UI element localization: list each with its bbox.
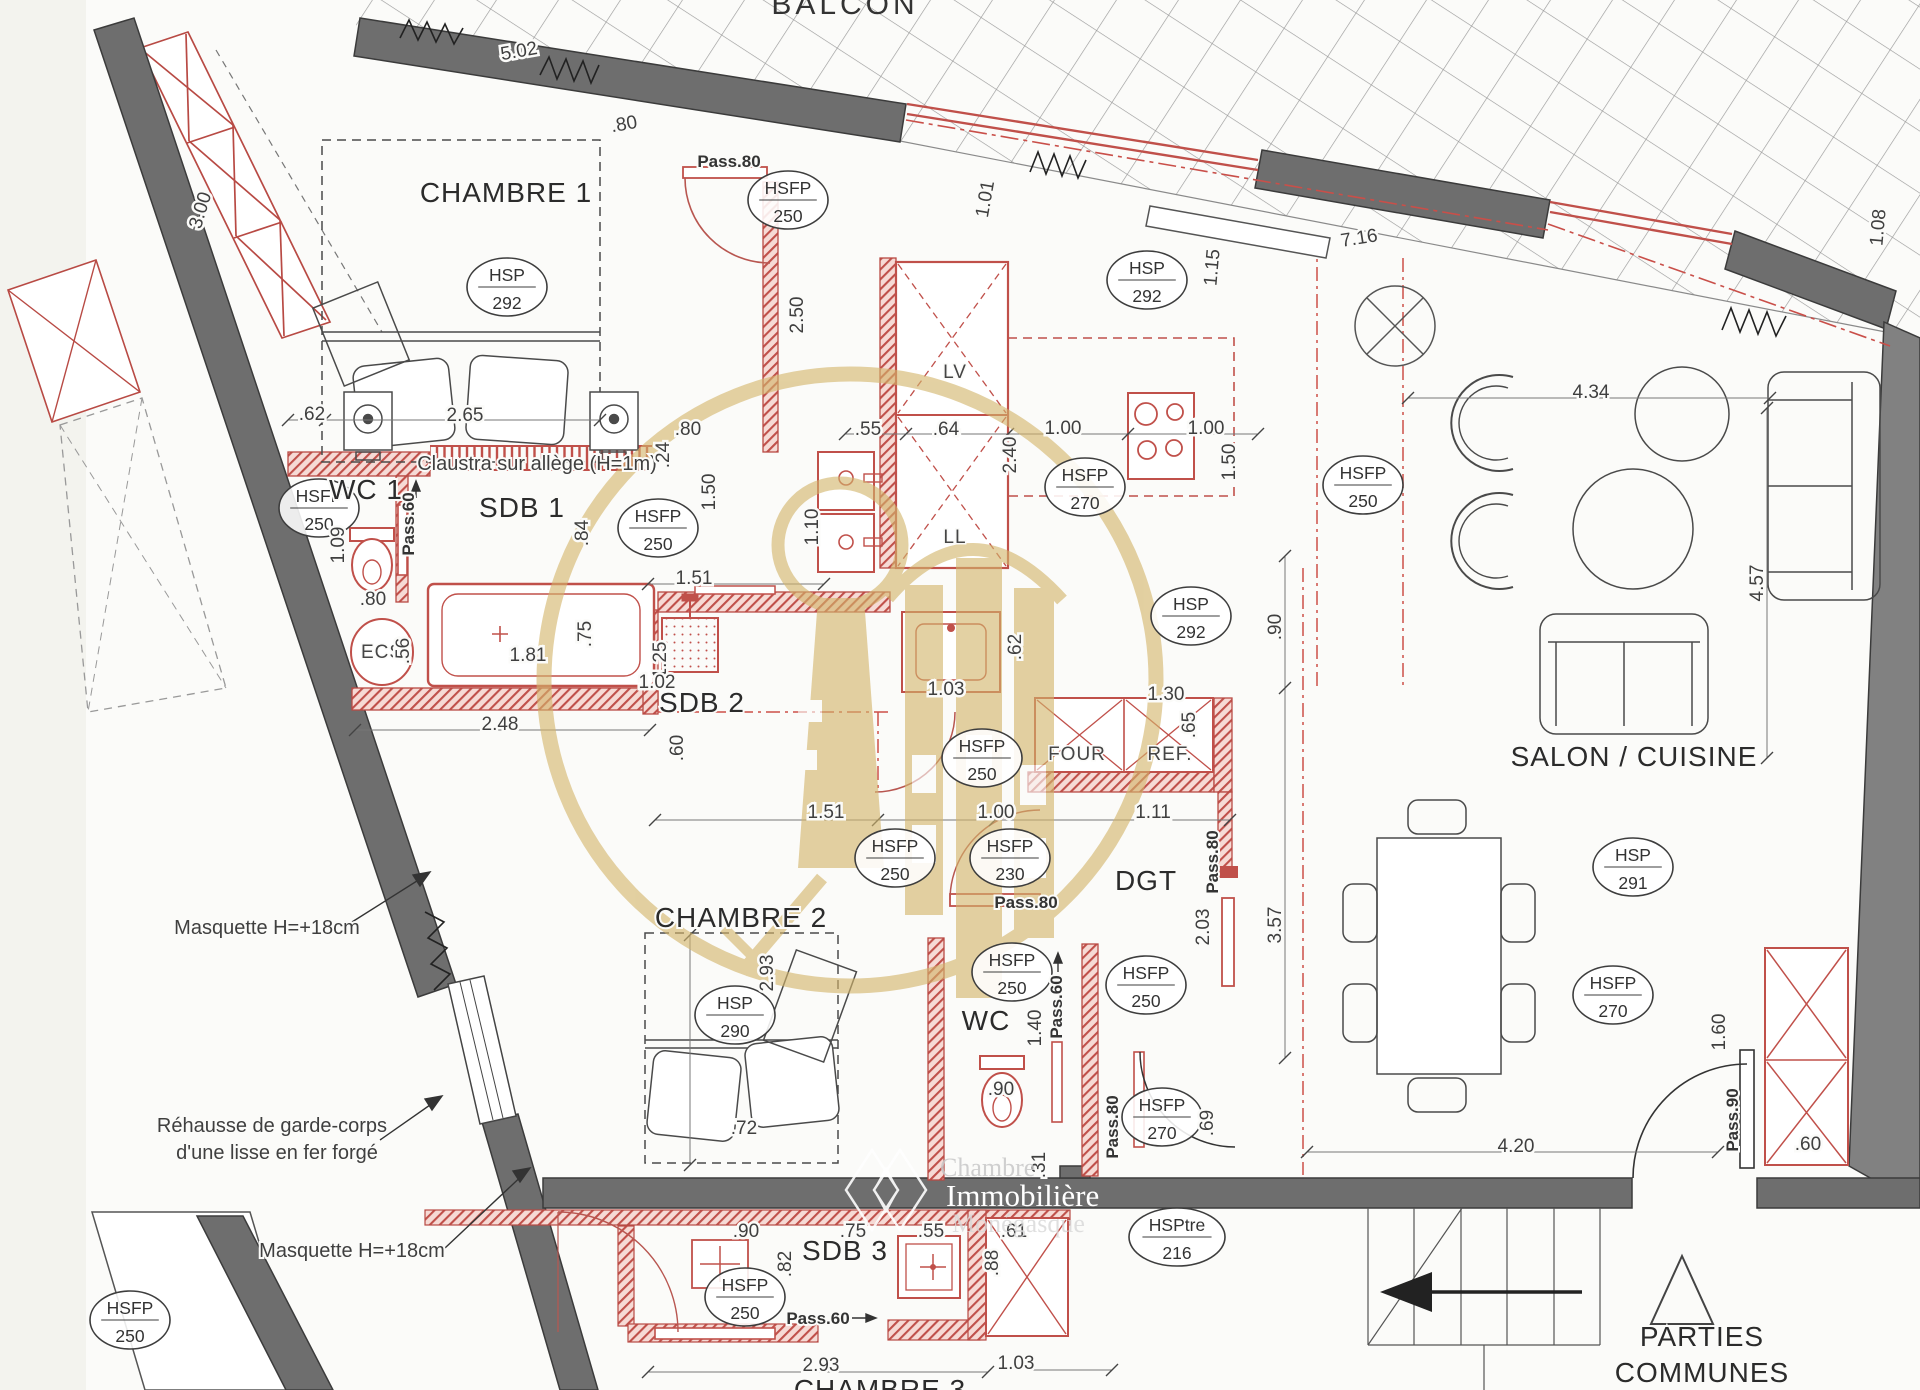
badge-value: 250 (967, 764, 996, 784)
badge-code: HSP (1129, 258, 1165, 278)
watermark-text-3: Monégasque (952, 1209, 1085, 1238)
height-badge: HSP292 (1107, 251, 1187, 309)
height-badge: HSFP270 (1122, 1088, 1202, 1146)
label-dim: 1.51 (808, 802, 845, 823)
label-dim: 1.00 (1045, 418, 1082, 439)
label-dim: .90 (733, 1221, 759, 1242)
wall-sdb3-left (618, 1226, 634, 1326)
wall-sdb1-bottom (352, 688, 658, 710)
wall-wc-right (1082, 944, 1098, 1176)
badge-code: HSPtre (1149, 1215, 1205, 1235)
badge-code: HSFP (1123, 963, 1170, 983)
badge-code: HSFP (1139, 1095, 1186, 1115)
badge-code: HSFP (989, 950, 1036, 970)
badge-code: HSFP (722, 1275, 769, 1295)
label-dim: .84 (572, 519, 593, 546)
height-badge: HSFP230 (970, 829, 1050, 887)
label-dim: 4.34 (1573, 382, 1610, 403)
label-dim: 1.50 (699, 474, 720, 511)
badge-value: 250 (115, 1326, 144, 1346)
appliance-label-ref: REF. (1147, 744, 1192, 765)
label-dim: 2.65 (447, 405, 484, 426)
label-dim: 2.50 (787, 297, 808, 334)
label-dim: 1.08 (1866, 208, 1890, 247)
badge-value: 250 (643, 534, 672, 554)
annotation-masquette-2: Masquette H=+18cm (259, 1240, 445, 1262)
label-dim: .82 (775, 1251, 796, 1277)
height-badge: HSFP250 (90, 1291, 170, 1349)
room-label-salon-cuisine: SALON / CUISINE (1511, 741, 1758, 772)
badge-value: 270 (1598, 1001, 1627, 1021)
height-badge: HSP290 (695, 986, 775, 1044)
label-dim: 1.60 (1709, 1014, 1730, 1051)
label-dim: 1.15 (1200, 248, 1224, 287)
height-badge: HSFP250 (972, 943, 1052, 1001)
room-label-sdb1: SDB 1 (479, 492, 565, 523)
appliance-label-four: FOUR (1048, 744, 1106, 765)
label-dim: 1.50 (1219, 444, 1240, 481)
height-badge: HSFP250 (1323, 456, 1403, 514)
badge-value: 250 (773, 206, 802, 226)
label-dim: 1.09 (328, 527, 349, 564)
height-badge: HSP292 (1151, 587, 1231, 645)
room-label-balcon: BALCON (771, 0, 918, 21)
closet-entry (1765, 948, 1848, 1165)
label-dim: .69 (1197, 1110, 1218, 1136)
label-dim: .60 (1795, 1134, 1821, 1155)
label-dim: .88 (982, 1250, 1003, 1276)
badge-value: 250 (997, 978, 1026, 998)
height-badge: HSP292 (467, 258, 547, 316)
label-dim: 3.57 (1265, 907, 1286, 944)
badge-code: HSFP (987, 836, 1034, 856)
label-dim: .75 (840, 1221, 866, 1242)
shower-sdb3 (898, 1236, 960, 1298)
label-pass: Pass.80 (697, 152, 760, 171)
height-badge: HSP291 (1593, 838, 1673, 896)
height-badge: HSFP250 (618, 499, 698, 557)
height-badge: HSFP250 (748, 171, 828, 229)
annotation-masquette-1: Masquette H=+18cm (174, 917, 360, 939)
label-dim: .55 (855, 419, 881, 440)
label-dim: 2.40 (1000, 437, 1021, 474)
label-dim: 4.20 (1498, 1136, 1535, 1157)
height-badge: HSFP250 (942, 729, 1022, 787)
label-dim: 1.10 (802, 509, 823, 546)
badge-code: HSP (1615, 845, 1651, 865)
badge-code: HSFP (635, 506, 682, 526)
badge-code: HSFP (1340, 463, 1387, 483)
label-dim: 4.57 (1747, 565, 1768, 602)
wall-dgt-top (1028, 772, 1214, 792)
height-badge: HSFP270 (1045, 458, 1125, 516)
label-dim: 1.51 (676, 568, 713, 589)
room-label-wc1: WC 1 (329, 474, 403, 505)
room-label-communes: COMMUNES (1615, 1357, 1789, 1388)
room-label-chambre2: CHAMBRE 2 (655, 902, 827, 933)
door-sdb3-leaf (655, 1328, 775, 1339)
height-badge: HSFP250 (705, 1268, 785, 1326)
label-dim: .55 (918, 1221, 944, 1242)
label-dim: .56 (393, 638, 414, 664)
scan-margin (0, 0, 86, 1390)
label-dim: 1.00 (1188, 418, 1225, 439)
label-dim: 2.03 (1193, 909, 1214, 946)
badge-value: 250 (1348, 491, 1377, 511)
wall-sdb3-bottom2 (888, 1320, 980, 1340)
badge-code: HSP (489, 265, 525, 285)
badge-code: HSFP (1062, 465, 1109, 485)
label-dim: .80 (360, 589, 386, 610)
room-label-chambre1: CHAMBRE 1 (420, 177, 592, 208)
badge-value: 292 (1176, 622, 1205, 642)
label-dim: .80 (675, 419, 701, 440)
floor-plan-page: HSFP250HSP292HSFP250HSFP250HSFP270HSFP25… (0, 0, 1920, 1390)
wall-bottom-right (1757, 1178, 1920, 1208)
label-pass: Pass.80 (1203, 830, 1222, 893)
badge-value: 291 (1618, 873, 1647, 893)
label-dim: .24 (653, 441, 674, 468)
room-label-parties: PARTIES (1640, 1321, 1764, 1352)
badge-value: 250 (730, 1303, 759, 1323)
room-label-chambre3: CHAMBRE 3 (794, 1374, 966, 1390)
label-pass: Pass.80 (1103, 1095, 1122, 1158)
label-dim: .65 (1179, 712, 1200, 738)
wall-kitchen-corner (1214, 698, 1232, 792)
label-dim: .90 (988, 1079, 1014, 1100)
label-dim: 1.00 (978, 802, 1015, 823)
badge-code: HSFP (107, 1298, 154, 1318)
badge-code: HSFP (765, 178, 812, 198)
height-badge: HSFP250 (1106, 956, 1186, 1014)
label-dim: 1.40 (1025, 1010, 1046, 1047)
label-dim: 1.02 (639, 672, 676, 693)
badge-value: 292 (1132, 286, 1161, 306)
label-dim: 2.48 (482, 714, 519, 735)
wall-wc1-top (288, 452, 430, 476)
label-dim: 2.93 (803, 1355, 840, 1376)
room-label-dgt: DGT (1115, 865, 1177, 896)
label-pass: Pass.80 (994, 893, 1057, 912)
label-pass: Pass.60 (399, 492, 418, 555)
label-dim: 1.03 (998, 1353, 1035, 1374)
annotation-claustra: Claustra sur allège (H=1m) (417, 453, 657, 475)
label-pass: Pass.60 (1047, 975, 1066, 1038)
annotation-rehausse-2: d'une lisse en fer forgé (176, 1142, 378, 1164)
label-dim: .62 (299, 404, 325, 425)
watermark-text-2: Immobilière (946, 1178, 1099, 1213)
appliance-label-ll: LL (943, 527, 966, 548)
badge-value: 270 (1070, 493, 1099, 513)
label-dim: 1.11 (1135, 802, 1171, 823)
door-kitchen-leaf (1222, 898, 1234, 986)
badge-value: 270 (1147, 1123, 1176, 1143)
badge-value: 250 (1131, 991, 1160, 1011)
badge-code: HSFP (959, 736, 1006, 756)
door-wc-leaf (1052, 1042, 1062, 1122)
badge-value: 250 (880, 864, 909, 884)
badge-value: 230 (995, 864, 1024, 884)
label-dim: .72 (731, 1118, 757, 1139)
label-dim: .75 (575, 621, 596, 647)
badge-value: 216 (1162, 1243, 1191, 1263)
badge-code: HSP (717, 993, 753, 1013)
appliance-label-lv: LV (943, 362, 967, 383)
height-badge: HSPtre216 (1129, 1208, 1225, 1266)
speaker-left (344, 392, 392, 460)
label-dim: 2.93 (757, 955, 778, 992)
floor-plan: HSFP250HSP292HSFP250HSFP250HSFP270HSFP25… (0, 0, 1920, 1390)
badge-value: 290 (720, 1021, 749, 1041)
badge-code: HSP (1173, 594, 1209, 614)
badge-code: HSFP (1590, 973, 1637, 993)
badge-value: 292 (492, 293, 521, 313)
annotation-rehausse-1: Réhausse de garde-corps (157, 1115, 387, 1137)
label-dim: .62 (1005, 634, 1026, 660)
badge-code: HSFP (872, 836, 919, 856)
label-dim: 1.30 (1148, 684, 1185, 705)
label-dim: 1.81 (510, 645, 547, 666)
label-dim: .64 (933, 419, 960, 440)
speaker-right (590, 392, 638, 460)
height-badge: HSFP270 (1573, 966, 1653, 1024)
room-label-wc: WC (962, 1005, 1011, 1036)
label-pass: Pass.90 (1723, 1088, 1742, 1151)
label-dim: .60 (667, 735, 688, 761)
label-pass: Pass.60 (786, 1309, 849, 1328)
door-entry-leaf (1740, 1050, 1754, 1168)
label-dim: .90 (1265, 614, 1286, 640)
height-badge: HSFP250 (855, 829, 935, 887)
toilet-wc1 (350, 528, 394, 591)
label-dim: 1.03 (928, 679, 965, 700)
